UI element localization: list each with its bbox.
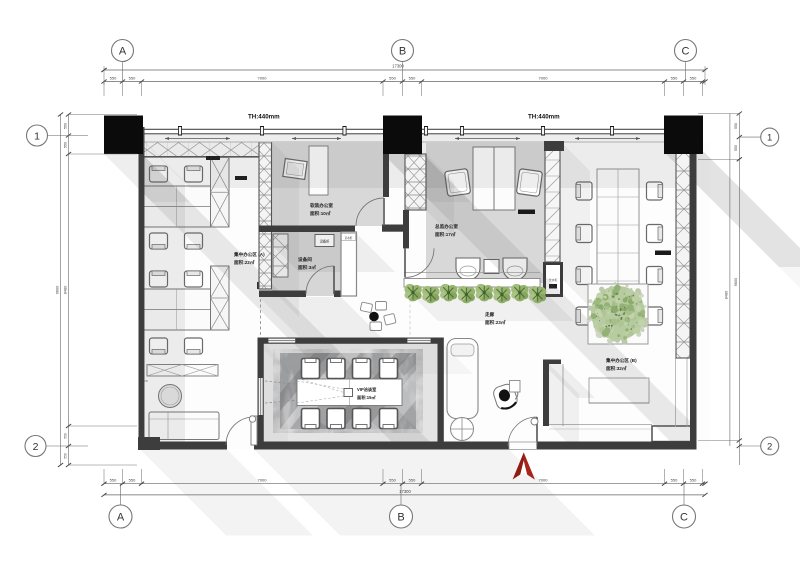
svg-text:C: C [680,512,688,524]
svg-text:面积:22㎡: 面积:22㎡ [234,259,255,266]
svg-text:走廊: 走廊 [484,311,495,318]
svg-text:总监办公室: 总监办公室 [435,223,458,230]
svg-text:面积:10㎡: 面积:10㎡ [310,210,331,217]
svg-text:7000: 7000 [539,76,549,81]
svg-text:设备间: 设备间 [298,256,312,263]
svg-text:550: 550 [64,433,68,439]
svg-text:9600: 9600 [56,286,60,294]
svg-text:面积:17㎡: 面积:17㎡ [435,231,456,238]
svg-text:2: 2 [767,442,772,453]
svg-text:面积:3㎡: 面积:3㎡ [298,264,316,271]
svg-text:550: 550 [671,76,678,81]
svg-text:550: 550 [389,478,396,483]
svg-text:550: 550 [64,142,68,148]
svg-text:8480: 8480 [64,286,68,294]
svg-text:7000: 7000 [258,76,268,81]
svg-text:550: 550 [409,76,416,81]
svg-text:2: 2 [33,441,39,453]
svg-text:VIP洽谈室: VIP洽谈室 [357,386,377,393]
svg-text:550: 550 [64,123,68,129]
svg-text:集中办公区 (A): 集中办公区 (A) [233,251,265,258]
svg-text:550: 550 [64,453,68,459]
svg-text:550: 550 [389,76,396,81]
svg-text:7000: 7000 [539,478,549,483]
svg-text:面积:15㎡: 面积:15㎡ [357,394,376,401]
svg-text:TH:440mm: TH:440mm [528,114,560,121]
svg-text:1: 1 [34,131,40,143]
svg-text:550: 550 [110,478,117,483]
svg-text:550: 550 [110,76,117,81]
svg-text:550: 550 [690,478,697,483]
svg-text:B: B [399,46,406,58]
svg-text:8480: 8480 [725,291,729,299]
svg-text:550: 550 [690,76,697,81]
svg-text:A: A [119,46,127,58]
svg-text:集中办公区 (B): 集中办公区 (B) [605,357,637,364]
svg-text:1: 1 [767,133,772,144]
svg-text:550: 550 [129,478,136,483]
svg-text:面积:23㎡: 面积:23㎡ [485,319,506,326]
svg-text:茶水柜: 茶水柜 [345,236,353,240]
svg-text:面积:32㎡: 面积:32㎡ [606,365,627,372]
svg-text:7000: 7000 [258,478,268,483]
svg-text:B: B [397,512,404,524]
svg-text:9600: 9600 [734,278,738,286]
svg-text:550: 550 [734,123,738,129]
svg-text:A: A [117,512,125,524]
svg-text:软装办公室: 软装办公室 [310,202,333,209]
svg-text:550: 550 [734,145,738,151]
svg-text:550: 550 [409,478,416,483]
svg-text:550: 550 [129,76,136,81]
svg-text:C: C [682,46,690,58]
svg-text:550: 550 [671,478,678,483]
svg-text:TH:440mm: TH:440mm [248,114,280,121]
